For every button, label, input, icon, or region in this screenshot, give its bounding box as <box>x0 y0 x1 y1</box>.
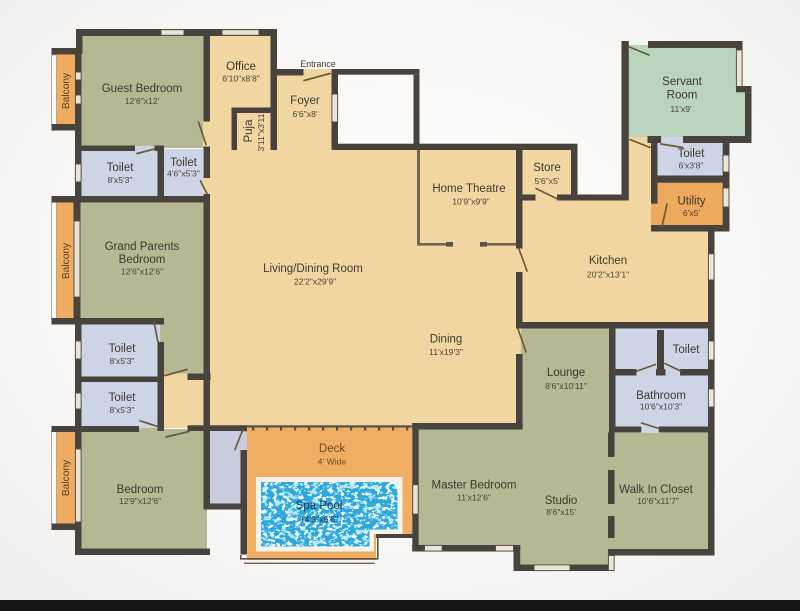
svg-text:Balcony: Balcony <box>61 242 72 279</box>
svg-text:Spa Pool: Spa Pool <box>296 500 343 512</box>
svg-text:Bedroom: Bedroom <box>119 254 166 266</box>
svg-text:4'6"x5'3": 4'6"x5'3" <box>167 169 200 179</box>
svg-text:3'11"x3'11": 3'11"x3'11" <box>256 110 266 151</box>
svg-text:Puja: Puja <box>243 119 255 143</box>
svg-text:Bathroom: Bathroom <box>636 390 686 402</box>
svg-text:10'6"x11'7": 10'6"x11'7" <box>637 496 679 506</box>
svg-text:Toilet: Toilet <box>170 157 198 169</box>
svg-text:Utility: Utility <box>677 196 705 208</box>
svg-text:Deck: Deck <box>319 443 345 455</box>
svg-text:10'6"x10'3": 10'6"x10'3" <box>640 402 682 412</box>
svg-text:Servant: Servant <box>662 76 702 88</box>
svg-text:Toilet: Toilet <box>109 392 137 404</box>
svg-text:22'2"x29'9": 22'2"x29'9" <box>294 277 336 287</box>
svg-text:Toilet: Toilet <box>678 148 706 160</box>
svg-text:Entrance: Entrance <box>300 59 335 69</box>
svg-text:Master Bedroom: Master Bedroom <box>431 480 516 492</box>
svg-text:Home Theatre: Home Theatre <box>432 183 505 195</box>
svg-text:6'10"x8'8": 6'10"x8'8" <box>222 74 260 84</box>
svg-text:Studio: Studio <box>545 495 578 507</box>
svg-text:8'x5'3": 8'x5'3" <box>108 175 133 185</box>
svg-text:Room: Room <box>667 90 698 102</box>
svg-text:6'x3'8": 6'x3'8" <box>679 161 704 171</box>
svg-text:11'x9': 11'x9' <box>670 104 692 114</box>
svg-text:Dining: Dining <box>430 334 463 346</box>
svg-text:12'6"x12'6": 12'6"x12'6" <box>121 267 163 277</box>
svg-text:Lounge: Lounge <box>547 367 585 379</box>
svg-text:Toilet: Toilet <box>107 162 135 174</box>
svg-text:8'x5'3": 8'x5'3" <box>110 356 135 366</box>
svg-text:Balcony: Balcony <box>61 72 72 109</box>
svg-text:4' Wide: 4' Wide <box>318 457 347 467</box>
svg-text:Guest Bedroom: Guest Bedroom <box>102 83 183 95</box>
svg-text:10'9"x9'9": 10'9"x9'9" <box>452 197 490 207</box>
svg-text:Store: Store <box>533 162 561 174</box>
svg-text:Foyer: Foyer <box>290 95 320 107</box>
svg-text:Walk In Closet: Walk In Closet <box>619 484 694 496</box>
svg-text:5'6"x5': 5'6"x5' <box>535 176 560 186</box>
svg-text:8'6"x10'11": 8'6"x10'11" <box>545 381 587 391</box>
svg-text:20'2"x13'1": 20'2"x13'1" <box>587 270 629 280</box>
svg-text:8'x5'3": 8'x5'3" <box>110 405 135 415</box>
svg-text:Toilet: Toilet <box>109 343 137 355</box>
svg-text:6'x5': 6'x5' <box>683 208 700 218</box>
svg-text:Kitchen: Kitchen <box>589 255 627 267</box>
svg-text:12'9"x12'6": 12'9"x12'6" <box>119 496 161 506</box>
svg-text:Balcony: Balcony <box>61 459 72 496</box>
svg-text:Grand Parents: Grand Parents <box>105 241 180 253</box>
svg-text:8'6"x15': 8'6"x15' <box>546 507 576 517</box>
svg-text:Living/Dining Room: Living/Dining Room <box>263 263 363 275</box>
svg-text:Bedroom: Bedroom <box>117 484 164 496</box>
svg-text:11'x12'6": 11'x12'6" <box>457 493 491 503</box>
svg-text:11'x19'3": 11'x19'3" <box>429 347 463 357</box>
svg-text:14'3"x6'6": 14'3"x6'6" <box>300 515 338 525</box>
svg-text:Office: Office <box>226 61 256 73</box>
svg-text:12'6"x12': 12'6"x12' <box>125 96 160 106</box>
svg-text:Toilet: Toilet <box>673 344 701 356</box>
svg-text:6'6"x8': 6'6"x8' <box>293 109 318 119</box>
